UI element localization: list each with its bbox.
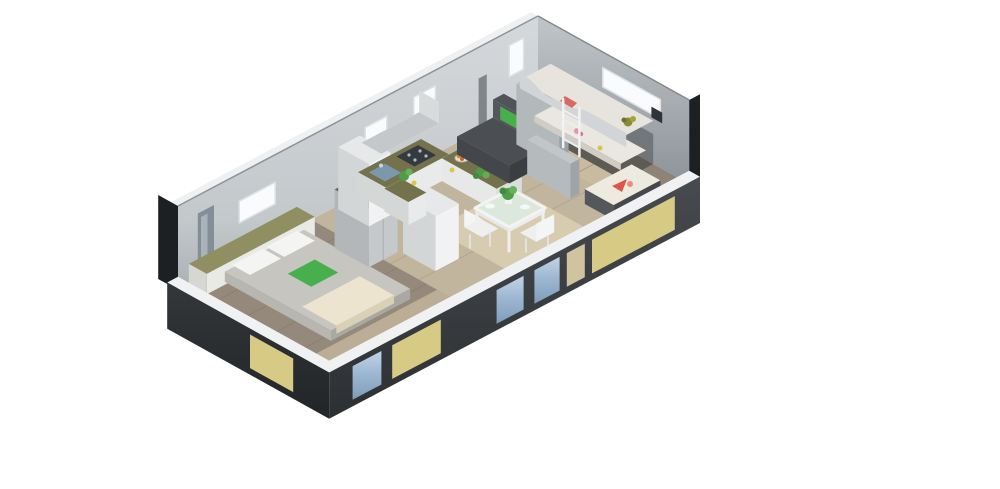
partition-wardrobe-low-part bbox=[570, 159, 579, 199]
greens-bowl-part bbox=[473, 173, 479, 179]
sink-counter-part bbox=[418, 149, 421, 152]
isometric-scene: 3D isometric cutaway floor plan render o… bbox=[0, 0, 1000, 489]
plate-2 bbox=[520, 205, 530, 210]
plate-1 bbox=[485, 204, 495, 209]
yellow-toy bbox=[598, 146, 603, 151]
sink-counter-part bbox=[413, 158, 416, 161]
olive-flowers-part bbox=[622, 118, 627, 123]
lemon bbox=[412, 181, 417, 186]
olive-flowers-part bbox=[630, 116, 636, 122]
return-counter-part bbox=[406, 169, 413, 176]
table-plant-part bbox=[509, 186, 517, 194]
sink-counter-part bbox=[407, 153, 410, 156]
left-wall-cut-edge bbox=[158, 195, 178, 290]
table-plant-part bbox=[500, 188, 507, 195]
lemon-2 bbox=[450, 168, 455, 173]
right-wall-cut-edge bbox=[689, 94, 700, 184]
greens-bowl-part bbox=[483, 172, 490, 179]
pink-fruit bbox=[627, 181, 633, 187]
faucet bbox=[379, 164, 383, 168]
floorplan-render: 3D isometric cutaway floor plan render o… bbox=[0, 0, 1000, 489]
sink-counter-part bbox=[424, 154, 427, 157]
mirror-panel-part bbox=[201, 214, 208, 262]
kids-tall-window bbox=[509, 38, 523, 77]
